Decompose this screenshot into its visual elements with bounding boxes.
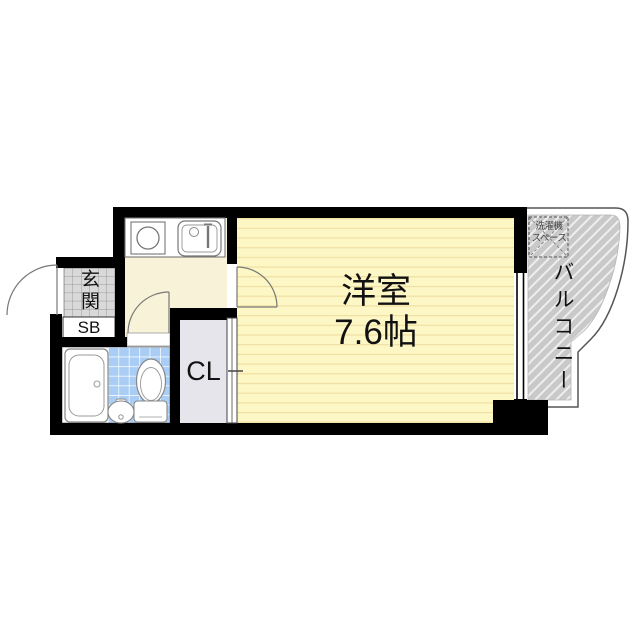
- wall-bathroom-top: [62, 337, 127, 347]
- bathtub-outer: [65, 349, 108, 422]
- main-room-size: 7.6帖: [240, 312, 512, 353]
- closet-label: CL: [180, 356, 227, 386]
- toilet-tank: [134, 401, 167, 422]
- bathtub-drain-icon: [94, 381, 100, 387]
- wall-right-bottom-block: [493, 400, 548, 430]
- wall-mainroom-left: [227, 217, 237, 264]
- main-room-name: 洋室: [240, 271, 512, 312]
- main-room-label: 洋室 7.6帖: [240, 271, 512, 353]
- laundry-space-label-line2: スペース: [529, 233, 569, 245]
- laundry-space-label: 洗濯機 スペース: [529, 221, 569, 244]
- kitchen-drain-icon: [190, 228, 199, 237]
- laundry-space-label-line1: 洗濯機: [529, 221, 569, 233]
- kitchen-sink: [178, 221, 221, 256]
- wall-left-lower: [50, 314, 62, 435]
- wall-kitchen-left: [113, 217, 125, 262]
- wall-entrance-top: [56, 257, 115, 268]
- balcony-label: バルコニー: [552, 261, 573, 396]
- floorplan-canvas: 玄関 SB CL 洋室 7.6帖 バルコニー 洗濯機 スペース: [0, 0, 640, 640]
- wall-bottom: [50, 423, 548, 435]
- window-top-cap: [514, 262, 527, 273]
- toilet: [134, 359, 167, 422]
- bathroom-threshold: [127, 333, 170, 346]
- wall-entrance-right: [115, 257, 125, 347]
- main-room-window: [517, 272, 524, 400]
- bathtub: [65, 349, 108, 422]
- entrance-door-swing-arc: [7, 265, 57, 315]
- shoe-box-label: SB: [63, 318, 115, 338]
- wall-closet-left: [170, 315, 180, 423]
- kitchen-counter: [125, 218, 225, 257]
- wall-right-top: [514, 207, 527, 271]
- stove-burner-icon: [137, 227, 159, 249]
- wall-top: [113, 207, 527, 218]
- washbasin-bowl: [108, 401, 134, 423]
- entrance-label: 玄関: [79, 269, 98, 313]
